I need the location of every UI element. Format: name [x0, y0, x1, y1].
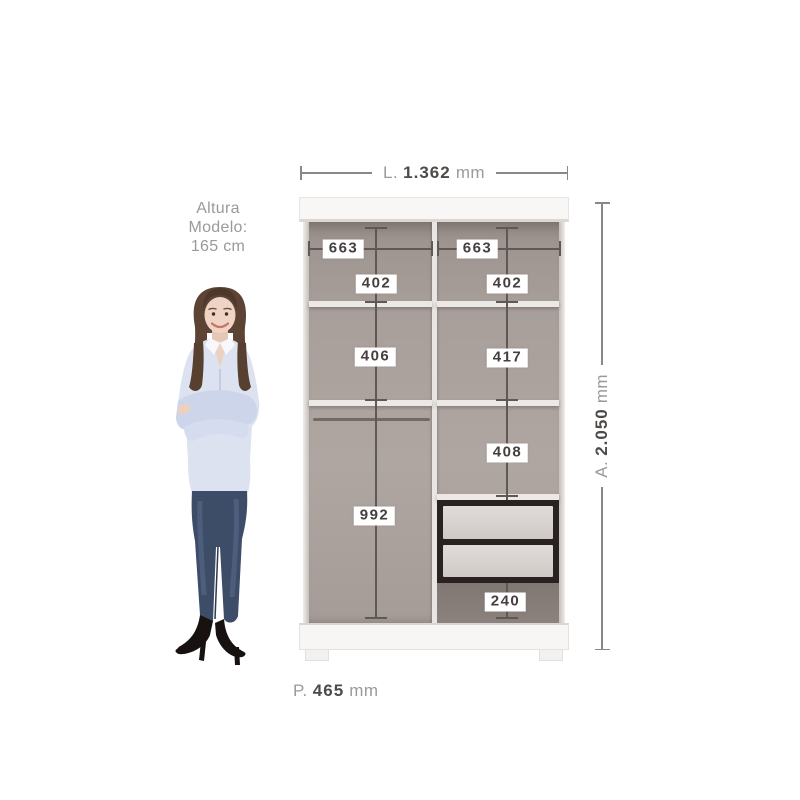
width-unit: mm: [456, 163, 485, 182]
width-value: 1.362: [403, 163, 451, 182]
measurement-label-992: 992: [354, 507, 395, 526]
dimension-tick: [595, 649, 610, 651]
measure-tick: [496, 617, 518, 619]
wardrobe-foot-left: [305, 650, 329, 661]
measure-tick: [308, 241, 310, 256]
measure-tick: [365, 399, 387, 401]
measurement-label-240: 240: [485, 593, 526, 612]
height-dimension: A. 2.050 mm: [592, 202, 612, 650]
measurement-label-663-right: 663: [457, 240, 498, 259]
measure-tick: [496, 227, 518, 229]
dimension-line: [302, 172, 373, 174]
measurement-label-417: 417: [487, 349, 528, 368]
measure-tick: [496, 495, 518, 497]
depth-dimension-label: P. 465 mm: [293, 681, 378, 701]
measure-tick: [365, 227, 387, 229]
hanging-rod: [313, 418, 430, 421]
wardrobe-left-wall: [303, 222, 309, 623]
measurement-label-408: 408: [487, 444, 528, 463]
measure-tick: [496, 301, 518, 303]
model-note-line2: Modelo:: [164, 218, 272, 237]
eye: [225, 312, 228, 315]
width-dimension-label: L. 1.362 mm: [383, 163, 485, 183]
wardrobe-top-panel: [299, 197, 569, 222]
model-photo: [154, 285, 264, 667]
width-dimension: L. 1.362 mm: [300, 165, 568, 181]
shelf-left-2: [309, 400, 432, 406]
measure-tick: [431, 241, 433, 256]
model-note-line1: Altura: [164, 199, 272, 218]
depth-prefix: P.: [293, 681, 308, 700]
height-value: 2.050: [592, 408, 611, 456]
measure-tick: [559, 241, 561, 256]
dimension-tick: [567, 166, 569, 180]
measure-tick: [437, 241, 439, 256]
measurement-label-663-left: 663: [323, 240, 364, 259]
wardrobe-foot-right: [539, 650, 563, 661]
depth-unit: mm: [349, 681, 378, 700]
drawer-unit: [437, 500, 559, 583]
eye: [212, 312, 215, 315]
dimension-line: [601, 487, 603, 649]
shoe-right-toe: [235, 651, 246, 657]
height-dimension-label: A. 2.050 mm: [592, 374, 612, 478]
model-note-line3: 165 cm: [164, 237, 272, 256]
shoe-left-toe: [176, 648, 187, 654]
measurement-label-402-left: 402: [356, 275, 397, 294]
wardrobe-base: [299, 623, 569, 650]
height-unit: mm: [592, 374, 611, 403]
wardrobe-right-wall: [559, 222, 565, 623]
model-height-note: Altura Modelo: 165 cm: [164, 199, 272, 256]
measurement-label-402-right: 402: [487, 275, 528, 294]
measure-tick: [496, 399, 518, 401]
depth-value: 465: [313, 681, 344, 700]
height-prefix: A.: [592, 461, 611, 478]
dimension-line: [496, 172, 567, 174]
dimension-line: [601, 204, 603, 366]
drawer-front-bottom: [443, 545, 553, 577]
measure-tick: [365, 301, 387, 303]
measure-tick: [365, 617, 387, 619]
measurement-label-406: 406: [355, 348, 396, 367]
drawer-front-top: [443, 506, 553, 539]
shelf-right-2: [437, 400, 559, 406]
width-prefix: L.: [383, 163, 398, 182]
